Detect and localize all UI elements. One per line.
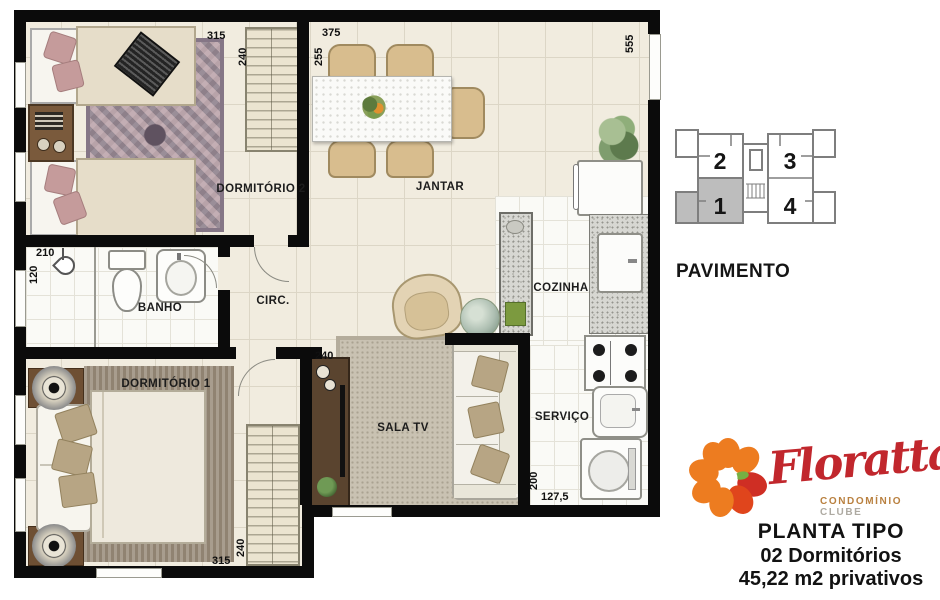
dim-240-top: 240 [237, 48, 249, 66]
table-centerpiece [360, 94, 388, 120]
knob [53, 140, 66, 153]
dining-chair [328, 140, 376, 178]
wall [14, 347, 236, 359]
room-label-dormitorio2: DORMITÓRIO 2 [216, 183, 305, 195]
sofa-pillow [467, 401, 505, 439]
sink-faucet [177, 253, 181, 260]
dim-200: 200 [528, 472, 540, 490]
wall [300, 359, 312, 505]
washing-machine [580, 438, 642, 500]
unit-4-label: 4 [784, 193, 797, 219]
dim-555: 555 [624, 35, 636, 53]
duvet-fold [102, 392, 104, 538]
fridge-handle [573, 164, 579, 210]
round-side-table [32, 524, 76, 568]
dim-120: 120 [28, 266, 40, 284]
double-bed-duvet [90, 390, 206, 544]
window [96, 568, 162, 578]
floratta-flower-logo [686, 426, 770, 530]
window [15, 270, 26, 327]
tank-basin [600, 394, 636, 428]
pavimento-diagram: 2 3 1 4 [672, 126, 842, 258]
wall [648, 100, 660, 517]
dining-chair [447, 87, 485, 139]
dim-240-sala: 240 [315, 350, 333, 362]
room-label-jantar: JANTAR [416, 181, 464, 193]
room-label-dormitorio1: DORMITÓRIO 1 [121, 378, 210, 390]
wall [218, 247, 230, 257]
round-side-table [32, 366, 76, 410]
plan-info-block: PLANTA TIPO 02 Dormitórios 45,22 m2 priv… [722, 520, 940, 592]
tagline-light: CLUBE [820, 507, 862, 518]
burner [593, 370, 605, 382]
burner [625, 344, 637, 356]
plan-area: 45,22 m2 privativos [722, 568, 940, 592]
dining-chair [386, 140, 434, 178]
faucet [628, 259, 637, 263]
dim-315-top: 315 [207, 30, 225, 42]
room-label-sala-tv: SALA TV [377, 422, 429, 434]
wardrobe-bedroom2 [245, 27, 301, 152]
knob [37, 138, 50, 151]
window [332, 507, 392, 517]
window [15, 152, 26, 202]
cutting-board [505, 302, 526, 326]
dim-375: 375 [322, 27, 340, 39]
small-bowls [506, 220, 524, 234]
nightstand [28, 104, 74, 162]
stove [584, 335, 646, 391]
window [15, 395, 26, 445]
refrigerator [577, 160, 643, 216]
wall [648, 10, 660, 34]
kitchen-counter-right [589, 214, 650, 334]
floor-plan-page: DORMITÓRIO 2 JANTAR BANHO CIRC. COZINHA … [0, 0, 940, 600]
plan-bedrooms: 02 Dormitórios [722, 545, 940, 569]
burner [593, 344, 605, 356]
pavimento-title: PAVIMENTO [676, 261, 790, 283]
seat-line [456, 396, 498, 397]
wall [297, 10, 309, 235]
tagline-bold: CONDOMÍNIO [820, 496, 902, 507]
plan-type: PLANTA TIPO [722, 520, 940, 545]
sofa-armrest [454, 484, 516, 498]
kitchen-sink [597, 233, 643, 293]
tv-screen [340, 385, 345, 477]
room-label-circ: CIRC. [256, 295, 289, 307]
wall [14, 10, 660, 22]
decor-knob [324, 379, 336, 391]
laundry-tank [592, 386, 648, 438]
dim-255: 255 [313, 48, 325, 66]
wall [445, 333, 518, 345]
wall [288, 235, 309, 247]
wall [14, 235, 254, 247]
books [35, 112, 63, 130]
unit-1-label: 1 [714, 193, 727, 219]
window [15, 62, 26, 108]
kitchen-island-counter [499, 212, 533, 336]
bed-pillow [58, 472, 98, 509]
window [649, 34, 661, 100]
seat-line [456, 444, 498, 445]
side-vase-plant [460, 298, 500, 338]
shower-divider [94, 247, 96, 347]
armchair-seat [402, 289, 451, 333]
wardrobe-bedroom1 [246, 424, 300, 566]
dim-240-bottom: 240 [235, 539, 247, 557]
room-label-banho: BANHO [138, 302, 182, 314]
room-label-cozinha: COZINHA [533, 282, 588, 294]
decor-knob [316, 365, 330, 379]
washer-panel [628, 448, 636, 490]
brand-tagline: CONDOMÍNIO CLUBE [820, 496, 940, 518]
wall [14, 566, 314, 578]
unit-2-label: 2 [714, 148, 727, 174]
stove-grid [610, 341, 611, 385]
room-label-servico: SERVIÇO [535, 411, 589, 423]
unit-3-label: 3 [784, 148, 797, 174]
burner [625, 370, 637, 382]
tank-faucet [632, 408, 640, 411]
shower-hose [62, 248, 64, 260]
single-bed-bottom-duvet [76, 158, 196, 238]
window [15, 478, 26, 532]
dim-210: 210 [36, 247, 54, 259]
washer-door [588, 450, 630, 492]
tv-rack [308, 357, 350, 509]
rack-plant [317, 477, 337, 497]
dim-127-5: 127,5 [541, 491, 569, 503]
toilet [108, 250, 146, 270]
brand-name: Floratta [766, 430, 940, 491]
dim-315-bottom: 315 [212, 555, 230, 567]
